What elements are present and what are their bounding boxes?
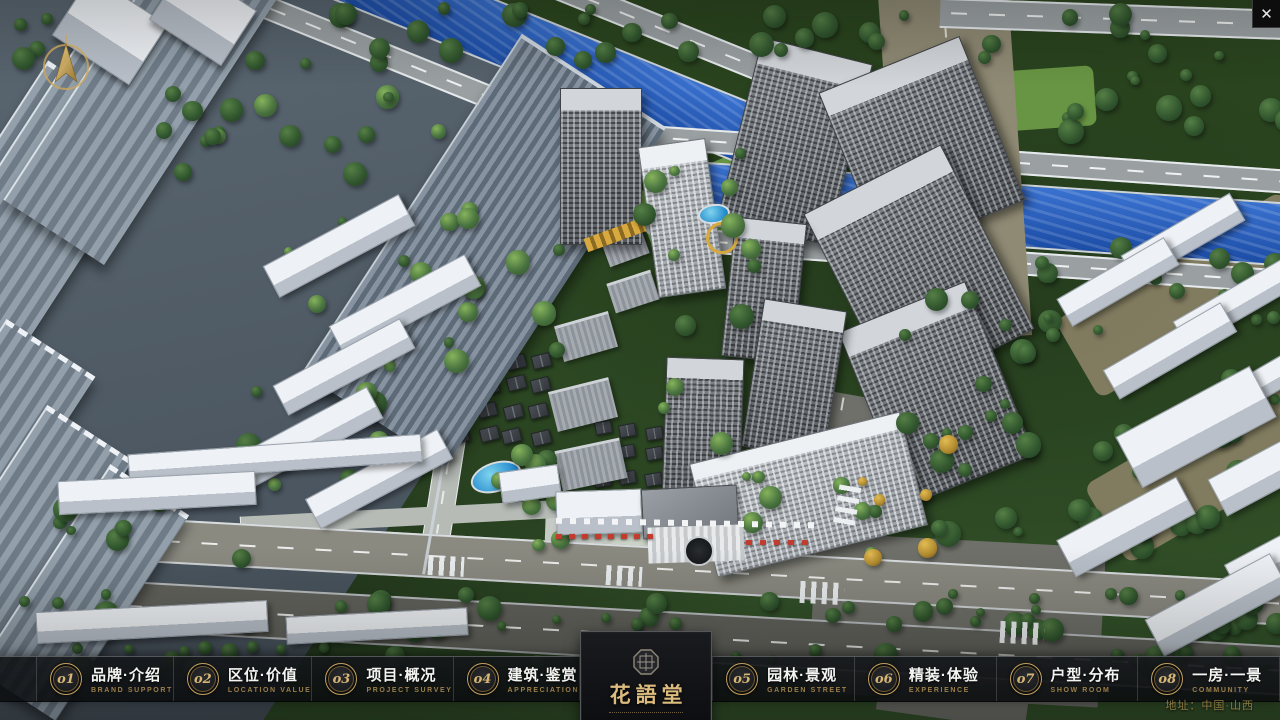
nav-item-labels: 园林·景观GARDEN STREET — [767, 664, 848, 694]
courtyard-house — [645, 426, 664, 442]
nav-item-number: o6 — [875, 673, 893, 686]
tree — [1119, 587, 1137, 605]
tree — [721, 179, 738, 196]
tree — [444, 337, 455, 348]
tree — [335, 600, 348, 613]
tree — [319, 642, 330, 653]
entrance-accent — [608, 534, 614, 539]
nav-item-number: o4 — [474, 673, 492, 686]
tree — [1269, 394, 1280, 405]
entrance-accent — [595, 534, 601, 539]
nav-item-number: o3 — [333, 673, 351, 686]
tree — [978, 51, 991, 64]
nav-item-label: 一房·一景 — [1192, 664, 1262, 685]
logo-panel[interactable]: 花語堂 — [580, 631, 712, 720]
tree — [763, 5, 786, 28]
tree — [1180, 69, 1192, 81]
tree — [1169, 283, 1185, 299]
tree — [995, 507, 1017, 529]
nav-medal-icon: o4 — [467, 663, 499, 695]
courtyard-house — [505, 374, 527, 392]
nav-item-sublabel: APPRECIATION — [508, 687, 580, 694]
tree — [669, 166, 679, 176]
close-button[interactable]: ✕ — [1252, 0, 1280, 28]
nav-item-sublabel: SHOW ROOM — [1051, 687, 1121, 694]
tree — [759, 486, 781, 508]
tree — [735, 148, 746, 159]
gate-emblem — [684, 536, 714, 566]
tree — [546, 37, 564, 55]
nav-medal-icon: o1 — [50, 663, 82, 695]
tree — [661, 13, 678, 30]
tree — [511, 444, 533, 466]
tree — [1148, 44, 1167, 63]
tree — [343, 162, 367, 186]
tree — [899, 329, 911, 341]
nav-medal-icon: o8 — [1151, 663, 1183, 695]
nav-item-number: o7 — [1017, 673, 1035, 686]
tree — [279, 125, 301, 147]
entrance-accent — [647, 534, 653, 539]
tree — [666, 378, 684, 396]
nav-item-label: 园林·景观 — [767, 664, 848, 685]
tree — [532, 301, 557, 326]
tree — [578, 13, 590, 25]
tree — [1156, 95, 1182, 121]
compass-north-icon — [36, 34, 96, 96]
tree — [1002, 412, 1024, 434]
nav-item-labels: 区位·价值LOCATION VALUE — [228, 664, 312, 694]
nav-item-labels: 一房·一景COMMUNITY — [1192, 664, 1262, 694]
tree — [948, 589, 957, 598]
tree — [646, 593, 667, 614]
entrance-accent — [760, 540, 766, 545]
seal-icon — [632, 648, 660, 676]
tree — [1130, 76, 1140, 86]
tree — [1093, 441, 1113, 461]
tree — [1062, 9, 1078, 25]
tree — [198, 641, 212, 655]
tree — [1058, 119, 1084, 145]
tree — [247, 641, 259, 653]
navbar-left: o1品牌·介绍BRAND SUPPORTo2区位·价值LOCATION VALU… — [0, 657, 580, 701]
tree — [308, 295, 326, 313]
tree — [886, 616, 902, 632]
tree — [1000, 399, 1009, 408]
navbar-spacer — [0, 657, 36, 701]
nav-item-number: o2 — [194, 673, 212, 686]
tree — [1046, 328, 1060, 342]
tree — [1266, 613, 1280, 633]
nav-item-project[interactable]: o3项目·概况PROJECT SURVEY — [311, 657, 452, 701]
tree — [658, 402, 670, 414]
tree — [869, 505, 882, 518]
tree — [115, 520, 131, 536]
tree — [999, 319, 1011, 331]
tree — [752, 471, 764, 483]
tree — [913, 601, 933, 621]
tree — [438, 2, 450, 14]
tree — [457, 208, 478, 229]
tree — [747, 259, 761, 273]
low-rise-building — [555, 489, 642, 536]
logo-title: 花語堂 — [605, 679, 688, 709]
tree — [842, 601, 855, 614]
nav-item-label: 区位·价值 — [228, 664, 312, 685]
courtyard-house — [618, 422, 637, 438]
entrance-accent — [802, 540, 808, 545]
tree — [553, 244, 565, 256]
entrance-accent — [746, 540, 752, 545]
tree — [1190, 85, 1211, 106]
nav-item-number: o1 — [57, 673, 75, 686]
entrance-accent — [582, 534, 588, 539]
nav-item-number: o8 — [1158, 673, 1176, 686]
tree — [12, 47, 35, 70]
nav-item-number: o5 — [733, 673, 751, 686]
tree — [245, 51, 264, 70]
nav-item-location[interactable]: o2区位·价值LOCATION VALUE — [173, 657, 312, 701]
tree — [925, 288, 948, 311]
tree — [300, 58, 311, 69]
courtyard-house — [528, 402, 550, 420]
nav-medal-icon: o6 — [868, 663, 900, 695]
nav-item-labels: 建筑·鉴赏APPRECIATION — [508, 664, 580, 694]
tree — [729, 304, 754, 329]
tree — [66, 526, 76, 536]
tree — [1017, 343, 1036, 362]
tree — [1140, 30, 1150, 40]
tree — [439, 38, 463, 62]
nav-item-architecture[interactable]: o4建筑·鉴赏APPRECIATION — [453, 657, 581, 701]
entrance-accent — [569, 534, 575, 539]
tree — [1267, 311, 1280, 324]
tree — [622, 23, 642, 43]
tree — [601, 613, 611, 623]
tree — [1016, 432, 1042, 458]
tree — [407, 20, 429, 42]
courtyard-house — [594, 420, 613, 436]
tree — [1196, 505, 1220, 529]
nav-item-community[interactable]: o8一房·一景COMMUNITY — [1137, 657, 1280, 701]
nav-item-sublabel: LOCATION VALUE — [228, 687, 312, 694]
tree — [532, 539, 544, 551]
entrance-accent — [788, 540, 794, 545]
entrance-accent — [556, 534, 562, 539]
nav-item-garden[interactable]: o5园林·景观GARDEN STREET — [712, 657, 854, 701]
tree — [809, 644, 822, 657]
nav-item-labels: 精装·体验EXPERIENCE — [909, 664, 979, 694]
tree — [324, 136, 341, 153]
tree — [760, 592, 778, 610]
entrance-accent — [774, 540, 780, 545]
tree — [1209, 248, 1230, 269]
nav-item-sublabel: EXPERIENCE — [909, 687, 979, 694]
address-text: 地址：中国·山西 — [1165, 697, 1254, 713]
tree — [383, 92, 393, 102]
tree — [1251, 314, 1262, 325]
masterplan-render — [0, 0, 1280, 720]
nav-item-label: 建筑·鉴赏 — [508, 664, 580, 685]
tree — [675, 315, 696, 336]
nav-medal-icon: o2 — [187, 663, 219, 695]
tree — [512, 2, 528, 18]
tree — [1013, 527, 1022, 536]
tree — [124, 644, 134, 654]
crosswalk — [999, 621, 1044, 645]
tree — [920, 489, 932, 501]
tree — [918, 538, 937, 557]
courtyard-house — [503, 403, 525, 421]
courtyard-house — [501, 427, 523, 445]
tree — [812, 12, 838, 38]
tree — [958, 425, 973, 440]
tree — [1214, 51, 1224, 61]
tree — [254, 94, 277, 117]
low-rise-building — [554, 438, 627, 492]
courtyard-house — [531, 352, 553, 370]
nav-item-label: 精装·体验 — [909, 664, 979, 685]
crosswalk — [428, 555, 465, 577]
tree — [41, 13, 53, 25]
nav-medal-icon: o3 — [325, 663, 357, 695]
tree — [976, 608, 985, 617]
bottom-navbar: o1品牌·介绍BRAND SUPPORTo2区位·价值LOCATION VALU… — [0, 656, 1280, 702]
tree — [975, 376, 991, 392]
courtyard-house — [479, 425, 501, 443]
crosswalk — [606, 565, 643, 587]
tree — [174, 163, 191, 180]
tree — [825, 608, 841, 624]
tree — [220, 98, 243, 121]
tree — [874, 494, 886, 506]
courtyard-house — [645, 446, 664, 462]
tree — [1095, 88, 1118, 111]
nav-item-labels: 品牌·介绍BRAND SUPPORT — [91, 664, 173, 694]
nav-item-floorplan[interactable]: o7户型·分布SHOW ROOM — [996, 657, 1138, 701]
tree — [795, 28, 814, 47]
nav-medal-icon: o5 — [726, 663, 758, 695]
tree — [741, 239, 761, 259]
nav-item-label: 项目·概况 — [366, 664, 452, 685]
nav-item-sublabel: COMMUNITY — [1192, 687, 1262, 694]
nav-item-labels: 项目·概况PROJECT SURVEY — [366, 664, 452, 694]
entrance-accent — [621, 534, 627, 539]
courtyard-house — [531, 429, 553, 447]
nav-item-sublabel: BRAND SUPPORT — [91, 687, 173, 694]
nav-item-brand[interactable]: o1品牌·介绍BRAND SUPPORT — [36, 657, 173, 701]
nav-item-labels: 户型·分布SHOW ROOM — [1051, 664, 1121, 694]
nav-item-sublabel: GARDEN STREET — [767, 687, 848, 694]
tree — [444, 349, 468, 373]
tree — [458, 302, 478, 322]
tree — [631, 618, 643, 630]
tree — [1031, 605, 1041, 615]
tree — [232, 549, 251, 568]
tree — [1105, 588, 1117, 600]
nav-item-sublabel: PROJECT SURVEY — [366, 687, 452, 694]
masterplan-app: ✕ o1品牌·介绍BRAND SUPPORTo2区位·价值LOCATION VA… — [0, 0, 1280, 720]
tree — [182, 101, 203, 122]
nav-item-experience[interactable]: o6精装·体验EXPERIENCE — [854, 657, 996, 701]
tree — [899, 10, 909, 20]
tree — [458, 587, 474, 603]
tree — [369, 38, 390, 59]
entrance-accent — [634, 534, 640, 539]
tree — [1184, 116, 1204, 136]
navbar-right: o5园林·景观GARDEN STREETo6精装·体验EXPERIENCEo7户… — [712, 657, 1280, 701]
crosswalk — [799, 581, 844, 605]
tree — [939, 435, 958, 454]
tree — [497, 621, 506, 630]
tree — [276, 644, 287, 655]
low-rise-building — [606, 270, 659, 314]
tree — [678, 41, 699, 62]
tree — [156, 122, 172, 138]
tree — [204, 128, 221, 145]
tree — [864, 549, 881, 566]
nav-medal-icon: o7 — [1010, 663, 1042, 695]
nav-item-label: 品牌·介绍 — [91, 664, 173, 685]
logo-divider — [609, 712, 683, 713]
tree — [251, 386, 261, 396]
tree — [1067, 103, 1084, 120]
tree — [595, 42, 615, 62]
courtyard-house — [644, 471, 663, 487]
tree — [1068, 499, 1090, 521]
nav-item-label: 户型·分布 — [1051, 664, 1121, 685]
tree — [101, 589, 111, 599]
